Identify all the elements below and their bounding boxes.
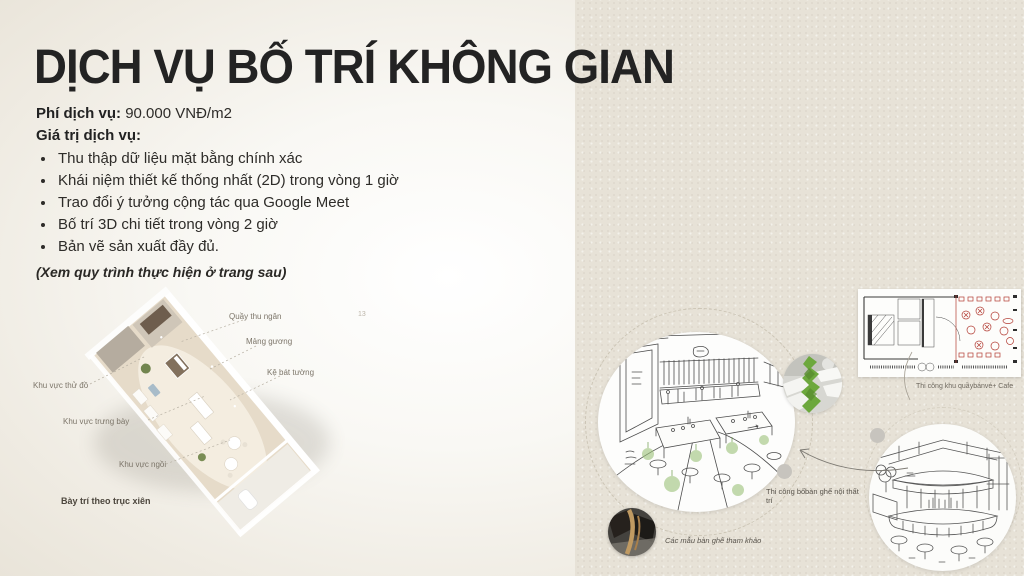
fp-label-wall-shelf: Kệ bát tường xyxy=(267,368,314,377)
service-fee-label: Phí dịch vụ: xyxy=(36,105,121,122)
slide: DỊCH VỤ BỐ TRÍ KHÔNG GIAN Phí dịch vụ: 9… xyxy=(0,0,1024,576)
service-bullet-list: Thu thập dữ liệu mặt bằng chính xác Khái… xyxy=(36,148,399,258)
fp-label-seating: Khu vực ngồi xyxy=(119,460,166,469)
fp-caption: Bày trí theo trục xiên xyxy=(61,496,151,506)
fp-label-cashier: Quầy thu ngân xyxy=(229,312,281,321)
service-value-label: Giá trị dịch vụ: xyxy=(36,125,399,147)
bullet-item: Khái niệm thiết kế thống nhất (2D) trong… xyxy=(56,170,399,192)
fp-label-fitting: Khu vực thử đồ xyxy=(33,381,88,390)
page-number: 13 xyxy=(358,311,366,318)
fp-label-mirror: Mảng gương xyxy=(246,337,292,346)
cad-plan-image xyxy=(858,289,1021,377)
service-info: Phí dịch vụ: 90.000 VNĐ/m2 Giá trị dịch … xyxy=(36,103,399,283)
curved-arrow-icon xyxy=(792,438,912,474)
bracket-line xyxy=(896,350,914,402)
service-fee-value: 90.000 VNĐ/m2 xyxy=(125,105,232,122)
furniture-label: bàn ghế nội thất xyxy=(805,487,885,496)
service-fee-line: Phí dịch vụ: 90.000 VNĐ/m2 xyxy=(36,103,399,125)
moss-table-photo xyxy=(783,354,842,413)
dot-marker xyxy=(777,464,792,479)
page-title: DỊCH VỤ BỐ TRÍ KHÔNG GIAN xyxy=(34,44,674,92)
bullet-item: Trao đổi ý tưởng cộng tác qua Google Mee… xyxy=(56,192,399,214)
reference-caption: Các mẫu bàn ghế tham khảo xyxy=(665,536,761,545)
plan-caption: Thi công khu quầybánvé+ Cafe xyxy=(916,383,1013,390)
bullet-item: Thu thập dữ liệu mặt bằng chính xác xyxy=(56,148,399,170)
bullet-item: Bố trí 3D chi tiết trong vòng 2 giờ xyxy=(56,214,399,236)
construction-label: Thi công bố trí xyxy=(766,487,810,505)
restaurant-sketch xyxy=(598,332,795,512)
fp-label-display: Khu vực trưng bày xyxy=(63,417,129,426)
bullet-item: Bản vẽ sản xuất đầy đủ. xyxy=(56,236,399,258)
furniture-photo xyxy=(608,508,656,556)
